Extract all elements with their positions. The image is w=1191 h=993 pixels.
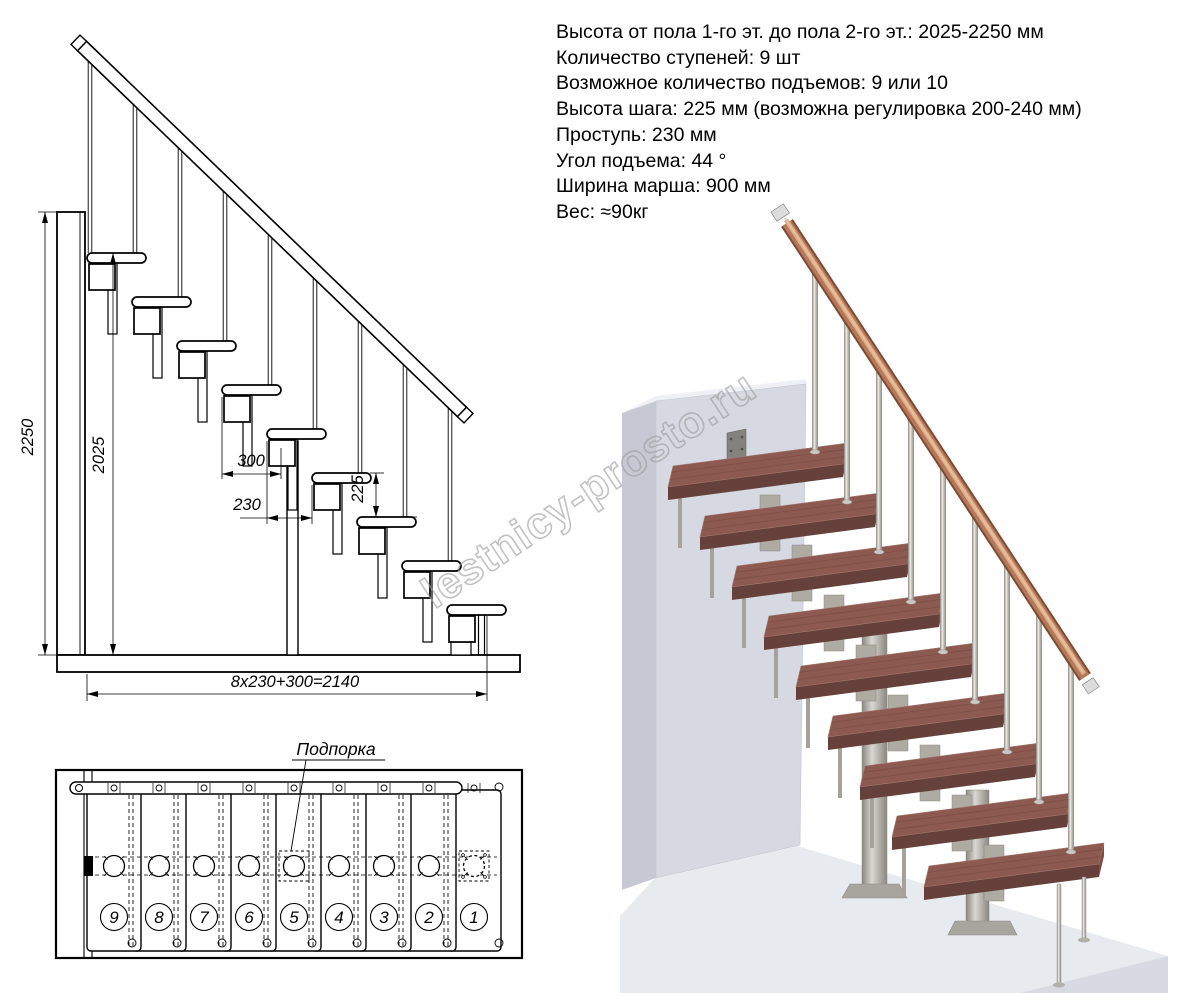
- spec-line: Высота шага: 225 мм (возможна регулировк…: [556, 97, 1116, 123]
- elevation-tread: [357, 517, 416, 527]
- step-leg: [838, 748, 842, 798]
- baluster-3d: [1004, 559, 1010, 752]
- step-leg: [678, 498, 682, 548]
- spec-line: Проступь: 230 мм: [556, 123, 1116, 149]
- step-leg: [902, 848, 906, 898]
- spec-line: Количество ступеней: 9 шт: [556, 46, 1116, 72]
- step-leg: [742, 598, 746, 648]
- spec-line: Угол подъема: 44 °: [556, 149, 1116, 175]
- step-leg: [1057, 884, 1061, 984]
- module-block: [89, 264, 115, 290]
- plan-rail-cap: [76, 785, 83, 792]
- baluster-3d: [876, 363, 882, 552]
- module-block: [179, 352, 205, 378]
- module-block: [314, 484, 340, 510]
- step-leg: [710, 548, 714, 598]
- top-plan-drawing: 987654321Подпорка: [56, 739, 522, 958]
- baluster-3d: [972, 510, 978, 702]
- spec-line: Вес: ≈90кг: [556, 200, 1116, 226]
- step-leg: [1082, 877, 1086, 939]
- elevation-tread: [177, 341, 236, 351]
- elevation-tread: [222, 385, 281, 395]
- plan-handrail: [70, 782, 462, 794]
- module-block: [224, 396, 250, 422]
- step-number: 6: [244, 908, 254, 927]
- step-number: 1: [469, 908, 478, 927]
- step-number: 4: [334, 908, 343, 927]
- step-leg: [806, 698, 810, 748]
- step-number: 2: [423, 908, 434, 927]
- baluster-3d: [908, 412, 914, 602]
- baluster-3d: [940, 461, 946, 652]
- step-number: 7: [199, 908, 209, 927]
- step-leg: [870, 798, 874, 848]
- handrail-cap-3d: [1082, 678, 1099, 694]
- spec-line: Высота от пола 1-го эт. до пола 2-го эт.…: [556, 20, 1116, 46]
- step-number: 5: [289, 908, 299, 927]
- step-number: 3: [379, 908, 389, 927]
- baluster-3d: [1036, 608, 1042, 802]
- module-block: [359, 528, 385, 554]
- spec-line: Возможное количество подъемов: 9 или 10: [556, 71, 1116, 97]
- step-leg: [774, 648, 778, 698]
- support-label: Подпорка: [296, 739, 375, 759]
- module-block: [269, 440, 295, 466]
- baluster-3d: [844, 315, 850, 502]
- module-block: [449, 616, 475, 642]
- column-flange: [842, 884, 907, 898]
- dimension-label: 8x230+300=2140: [231, 673, 360, 691]
- dimension-label: 2250: [19, 418, 37, 457]
- elevation-tread: [267, 429, 326, 439]
- elevation-tread: [87, 253, 146, 263]
- dimension-label: 300: [237, 452, 265, 470]
- dimension-label: 2025: [90, 436, 108, 475]
- column-flange: [948, 921, 1017, 935]
- step-number: 9: [109, 908, 119, 927]
- render-3d-staircase: [620, 204, 1168, 993]
- module-block: [134, 308, 160, 334]
- dimension-label: 230: [232, 496, 261, 514]
- spec-line: Ширина марша: 900 мм: [556, 174, 1116, 200]
- baluster-3d: [1068, 657, 1074, 852]
- dimension-label: 225: [349, 474, 367, 503]
- specs-block: Высота от пола 1-го эт. до пола 2-го эт.…: [556, 20, 1116, 226]
- baluster-3d: [812, 266, 818, 452]
- step-number: 8: [154, 908, 164, 927]
- technical-drawing-page: 225020253002302258x230+300=2140 98765432…: [0, 0, 1191, 993]
- elevation-tread: [132, 297, 191, 307]
